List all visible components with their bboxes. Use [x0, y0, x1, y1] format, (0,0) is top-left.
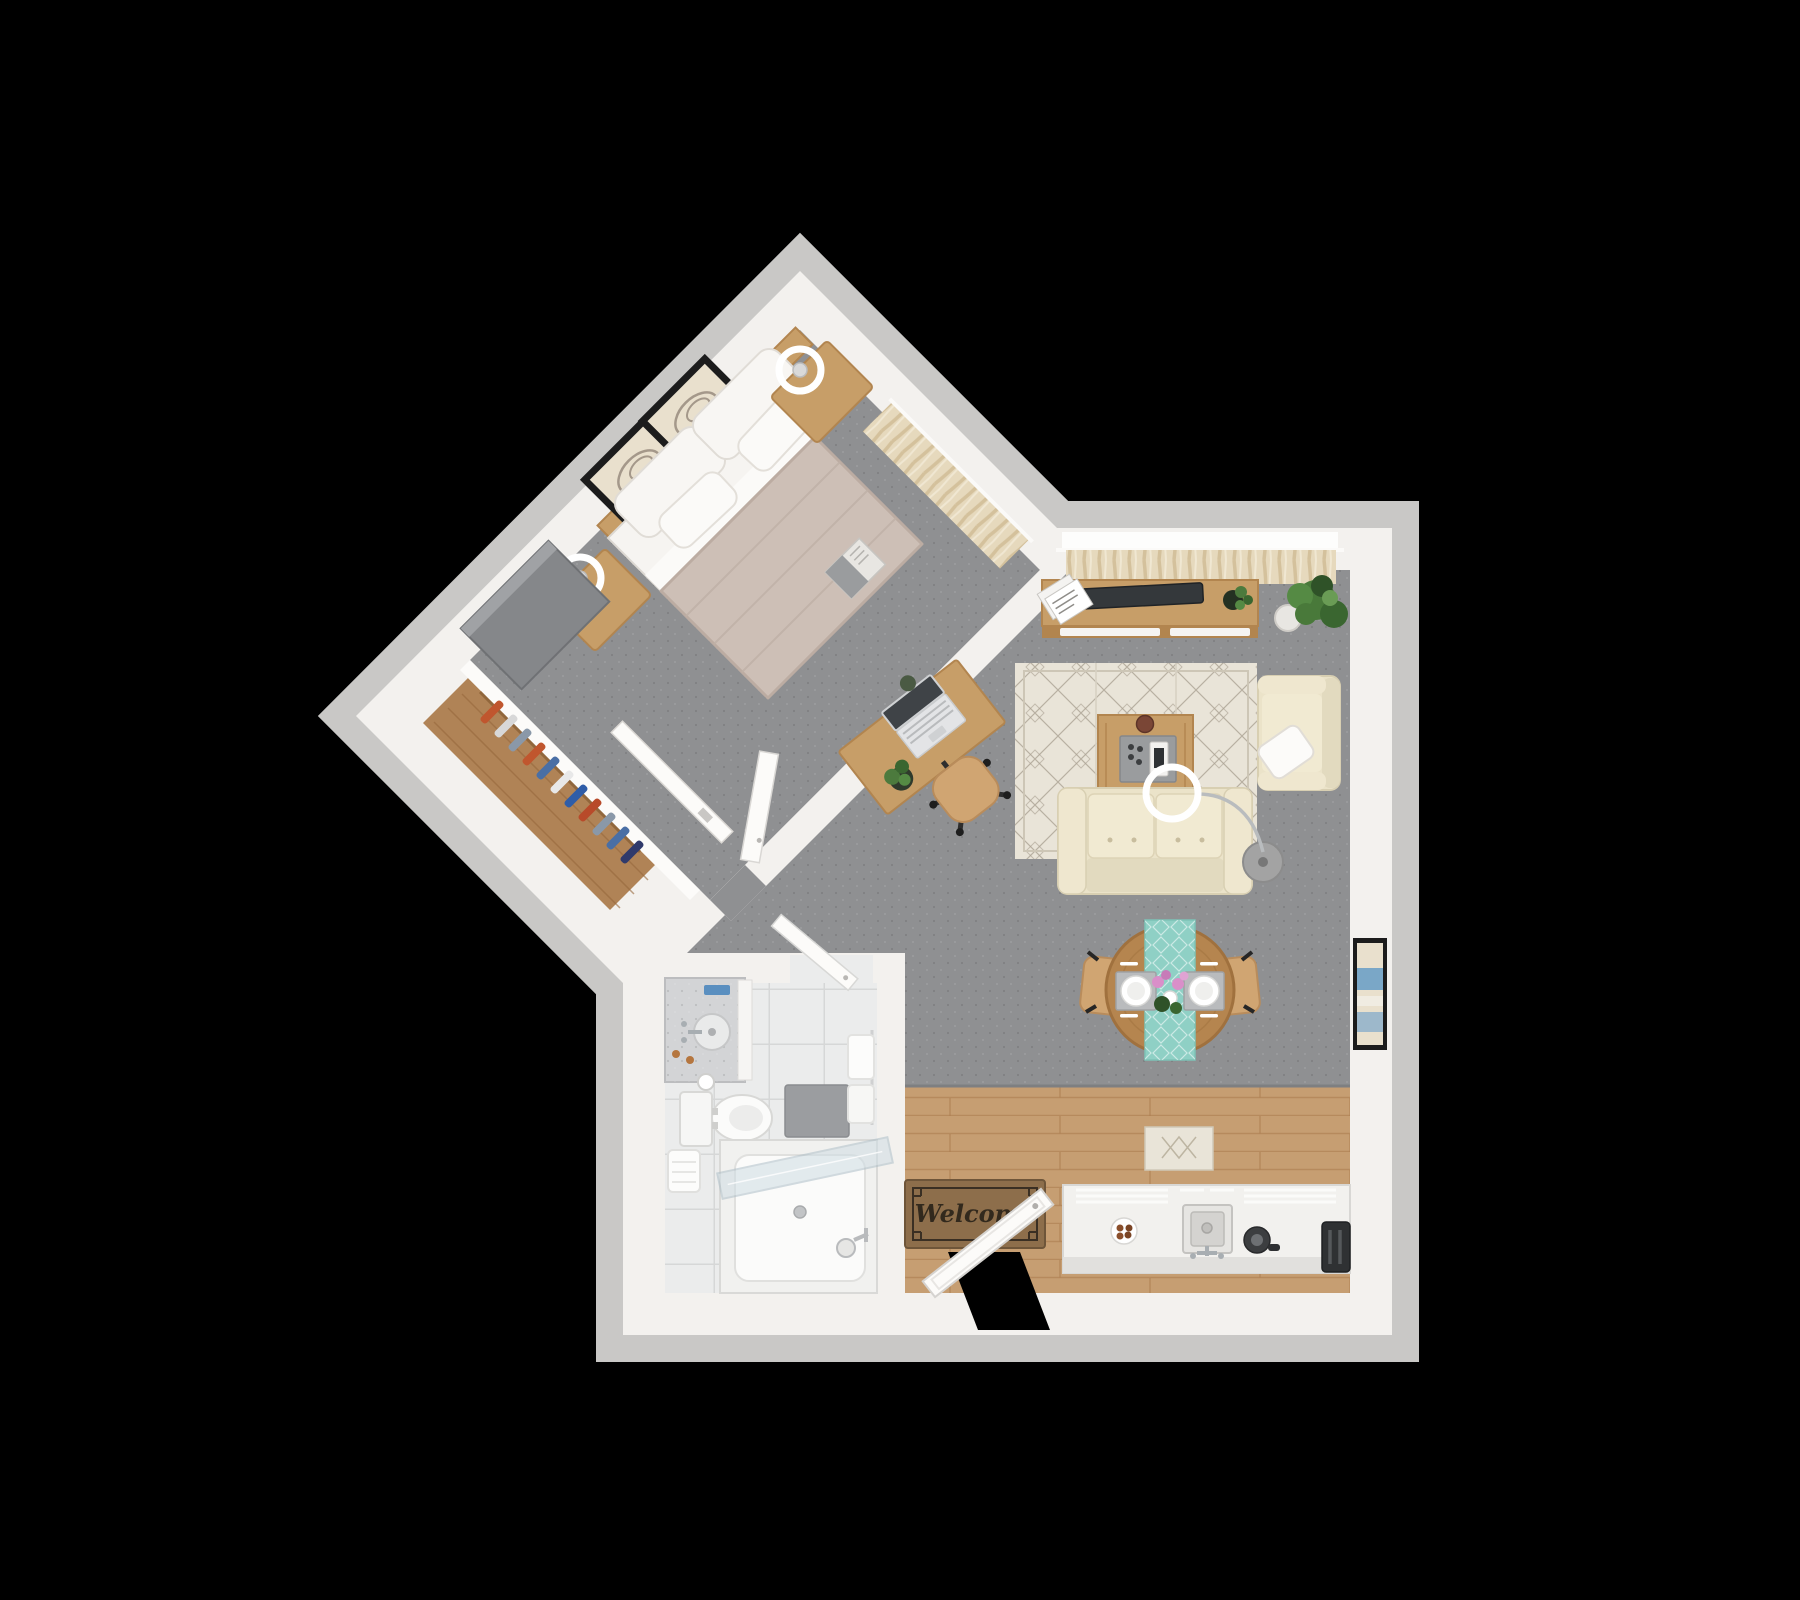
console-drawer: [1060, 628, 1160, 636]
bathroom-east-wall: [877, 953, 905, 1293]
screenshot-stage: Welcome: [0, 0, 1800, 1600]
media-console: [1037, 572, 1258, 638]
towel-stack-west: [668, 1150, 700, 1192]
window-sill: [1062, 532, 1338, 548]
small-rug: [1145, 1127, 1213, 1170]
bathtub-shower: [717, 1137, 893, 1293]
living-window: [1056, 532, 1344, 584]
cookie-plate: [1111, 1218, 1137, 1244]
toilet-paper: [698, 1074, 714, 1090]
kitchen-sink: [1183, 1205, 1232, 1259]
vanity: [665, 978, 752, 1082]
tub-drain: [794, 1206, 806, 1218]
armchair: [1255, 676, 1340, 790]
loveseat-sofa: [1058, 788, 1252, 894]
wall-art-east: [1353, 938, 1387, 1050]
toaster: [1322, 1222, 1350, 1272]
toiletries: [704, 985, 730, 995]
curtains: [1066, 550, 1336, 584]
toilet: [680, 1092, 772, 1146]
hanging-towels-east: [848, 1030, 874, 1125]
kitchen-counter: [1063, 1185, 1350, 1273]
mug: [1137, 716, 1154, 733]
floor-plan-render: Welcome: [0, 0, 1800, 1600]
bath-mat: [785, 1085, 849, 1137]
console-drawer: [1170, 628, 1250, 636]
